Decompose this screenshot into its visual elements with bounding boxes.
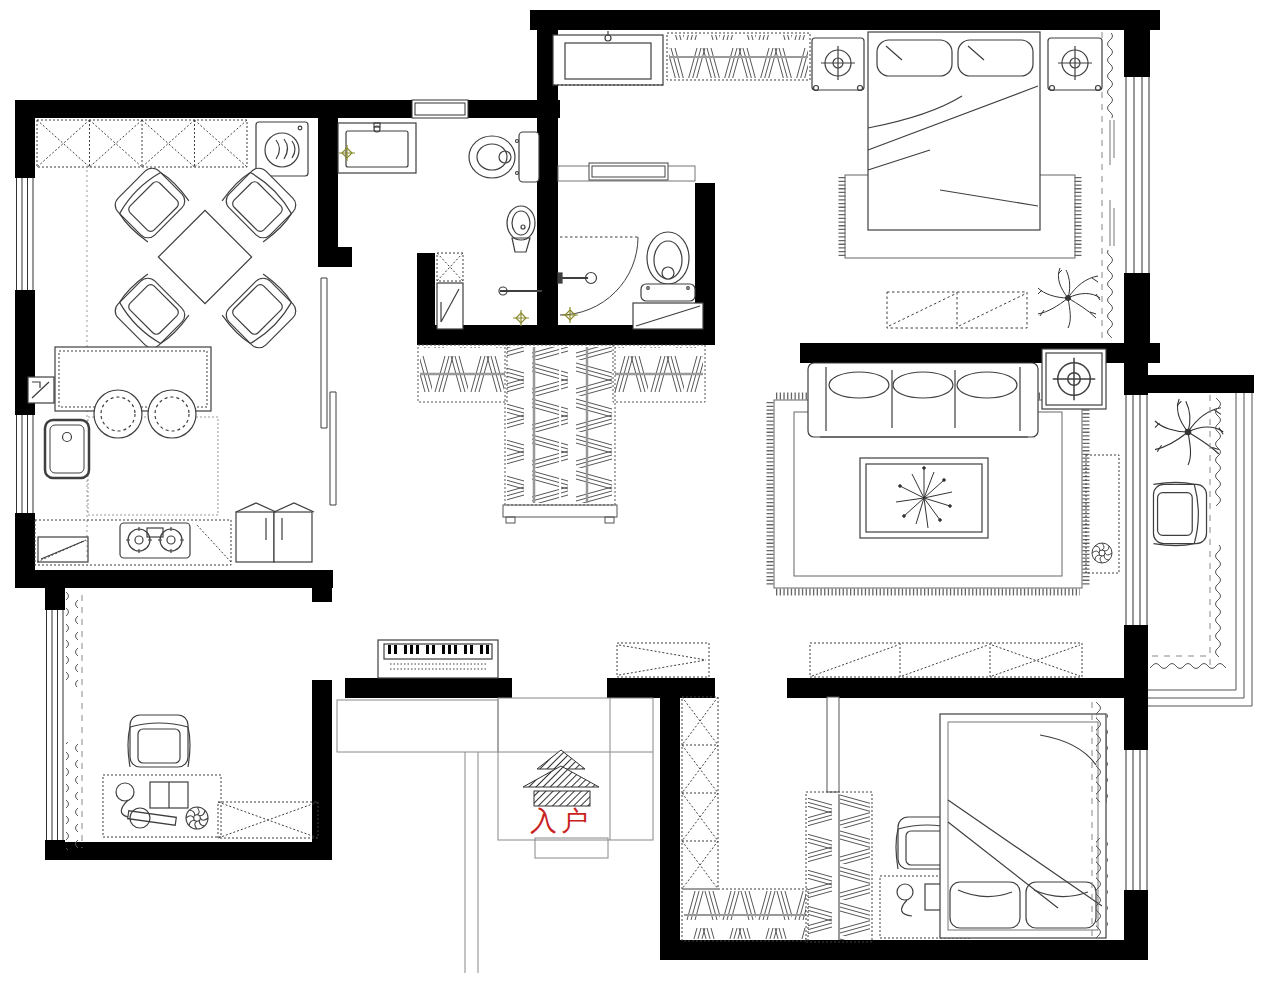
floor-drain-icon xyxy=(562,307,578,323)
vanity-sink-icon xyxy=(338,123,416,173)
sofa-icon xyxy=(808,363,1038,437)
room-balcony xyxy=(1148,393,1252,706)
dining-chair-icon xyxy=(110,163,191,244)
wardrobe-right-wing-icon xyxy=(613,345,705,402)
refrigerator-icon xyxy=(236,503,314,562)
low-cabinet-x-icon xyxy=(218,802,318,838)
meter-box-icon xyxy=(28,377,54,403)
window-master-right xyxy=(1124,77,1150,273)
room-shower xyxy=(437,253,542,329)
hanging-wardrobe-mid-icon xyxy=(806,792,872,942)
curtain-icon xyxy=(1102,32,1118,338)
nightstand-icon xyxy=(812,38,864,91)
room-kitchen xyxy=(28,347,314,565)
shower-head-icon xyxy=(558,273,597,284)
coffee-table-icon xyxy=(860,458,988,538)
bath2-top-wall xyxy=(558,163,695,181)
shower-tray-icon xyxy=(437,283,463,329)
window-bath1-top xyxy=(412,100,468,118)
dining-chair-icon xyxy=(221,273,302,354)
decor-flower-icon xyxy=(1092,543,1112,563)
washing-machine-icon xyxy=(256,122,308,176)
low-cabinet-icon xyxy=(633,303,703,329)
wardrobe-left-wing-icon xyxy=(418,345,507,402)
hanging-wardrobe-bottom-icon xyxy=(682,889,808,941)
floor-plan: 入户 xyxy=(0,0,1274,990)
wardrobe-x-column-icon xyxy=(682,697,718,889)
room-study xyxy=(66,592,318,850)
window-kitchen-left xyxy=(15,415,35,513)
corner-lamp-table-icon xyxy=(1042,349,1106,409)
room-bedroom2 xyxy=(682,697,1108,942)
toilet-icon xyxy=(469,132,539,182)
kitchen-sink-icon xyxy=(45,420,89,478)
floor-plan-canvas: 入户 xyxy=(0,0,1274,990)
dining-table-icon xyxy=(158,210,251,303)
piano-icon xyxy=(378,640,498,678)
storage-cell-icon xyxy=(437,253,463,281)
plant-icon xyxy=(1038,268,1100,328)
floor-drain-icon xyxy=(513,310,529,326)
pedestal-sink-icon xyxy=(507,206,535,252)
room-master-bedroom xyxy=(553,31,1118,338)
entry-label: 入户 xyxy=(530,805,592,836)
double-bed-icon xyxy=(940,714,1106,938)
entry-porch-lines xyxy=(337,698,653,973)
door-swing-arc xyxy=(560,237,638,315)
curtain-icon xyxy=(66,592,82,850)
window-living-right xyxy=(1124,395,1148,625)
entry-canopy-icon xyxy=(523,750,599,806)
toilet-icon xyxy=(641,232,695,301)
partition-stub xyxy=(827,697,839,792)
window-dining-left xyxy=(15,178,35,290)
wardrobe-center-column-icon xyxy=(503,345,617,523)
dresser-mirror-icon xyxy=(553,31,663,85)
armchair-icon xyxy=(128,715,190,767)
nightstand-icon xyxy=(1048,38,1102,91)
towel-bar-icon xyxy=(499,287,542,295)
tv-cabinet-icon xyxy=(1086,455,1119,573)
walk-in-closet xyxy=(418,345,705,523)
window-bedroom2-right xyxy=(1124,750,1148,890)
thin-partitions xyxy=(337,163,695,973)
room-dining xyxy=(37,120,308,558)
plant-icon xyxy=(1155,399,1223,465)
sliding-door-icon xyxy=(321,278,336,505)
armchair-icon xyxy=(1153,482,1206,545)
window-study-left xyxy=(45,610,65,840)
room-bath-main xyxy=(338,123,539,252)
wall-cabinets-icon xyxy=(37,120,247,167)
room-bath-second xyxy=(558,232,703,329)
foot-bench-icon xyxy=(887,292,1027,328)
sideboard-x-icon xyxy=(810,643,1082,677)
desk-icon xyxy=(103,775,221,837)
shoe-cabinet-icon xyxy=(617,643,709,677)
gas-stove-icon xyxy=(120,523,190,558)
dining-chair-icon xyxy=(110,273,191,354)
double-bed-icon xyxy=(868,32,1040,230)
entry-marker: 入户 xyxy=(523,750,599,836)
hanging-wardrobe-icon xyxy=(667,33,810,80)
